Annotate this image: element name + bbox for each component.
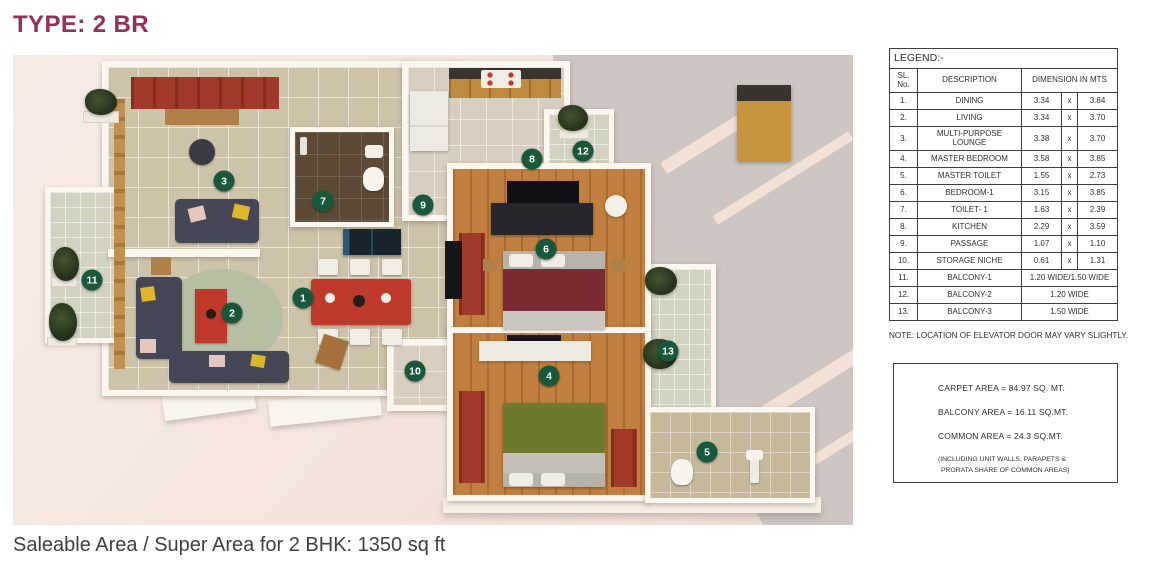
legend-row: 9.PASSAGE1.07x1.10 [890,235,1118,252]
area-line: COMMON AREA = 24.3 SQ.MT. [938,431,1113,441]
legend-row: 11.BALCONY-11.20 WIDE/1.50 WIDE [890,269,1118,286]
legend-row: 10.STORAGE NICHE0.61x1.31 [890,252,1118,269]
legend-row: 6.BEDROOM-13.15x3.85 [890,184,1118,201]
plan-markers: 12345678910111213 [13,55,853,525]
legend-row: 7.TOILET- 11.63x2.39 [890,201,1118,218]
room-marker-multi-purpose-lounge: 3 [214,171,235,192]
area-line: CARPET AREA = 84.97 SQ. MT. [938,383,1113,393]
legend-col-slno: SL. No. [890,68,918,92]
page-title: TYPE: 2 BR [13,11,149,39]
legend-title: LEGEND:- [890,49,1118,69]
room-marker-passage: 9 [413,195,434,216]
area-summary-box: CARPET AREA = 84.97 SQ. MT.BALCONY AREA … [893,363,1118,483]
floor-plan-render: 12345678910111213 [13,55,853,525]
saleable-area-text: Saleable Area / Super Area for 2 BHK: 13… [13,534,446,557]
area-note-line-2: PRORATA SHARE OF COMMON AREAS) [938,466,1113,477]
legend-row: 2.LIVING3.34x3.70 [890,109,1118,126]
legend-row: 1.DINING3.34x3.84 [890,92,1118,109]
area-line: BALCONY AREA = 16.11 SQ.MT. [938,407,1113,417]
floorplan-brochure-page: TYPE: 2 BR [0,0,1173,571]
room-marker-balcony-2: 12 [573,141,594,162]
room-marker-bedroom-1: 6 [536,239,557,260]
room-marker-master-toilet: 5 [697,442,718,463]
room-marker-kitchen: 8 [522,149,543,170]
legend-row: 3.MULTI-PURPOSE LOUNGE3.38x3.70 [890,126,1118,150]
legend-row: 4.MASTER BEDROOM3.58x3.85 [890,150,1118,167]
room-marker-master-bedroom: 4 [539,366,560,387]
legend-row: 5.MASTER TOILET1.55x2.73 [890,167,1118,184]
room-marker-toilet-1: 7 [313,191,334,212]
legend-table: LEGEND:- SL. No. DESCRIPTION DIMENSION I… [889,48,1118,321]
legend-row: 13.BALCONY-31.50 WIDE [890,303,1118,320]
legend-row: 8.KITCHEN2.29x3.59 [890,218,1118,235]
room-marker-living: 2 [222,303,243,324]
room-marker-balcony-3: 13 [658,341,679,362]
legend-row: 12.BALCONY-21.20 WIDE [890,286,1118,303]
elevator-note: NOTE: LOCATION OF ELEVATOR DOOR MAY VARY… [889,331,1139,340]
room-marker-dining: 1 [293,288,314,309]
area-note-line-1: (INCLUDING UNIT WALLS, PARAPETS & [938,455,1113,466]
legend-col-description: DESCRIPTION [918,68,1022,92]
room-marker-storage-niche: 10 [405,361,426,382]
legend-col-dimension: DIMENSION IN MTS [1022,68,1118,92]
legend-table-body: 1.DINING3.34x3.842.LIVING3.34x3.703.MULT… [890,92,1118,320]
room-marker-balcony-1: 11 [82,270,103,291]
area-lines: CARPET AREA = 84.97 SQ. MT.BALCONY AREA … [938,383,1113,441]
